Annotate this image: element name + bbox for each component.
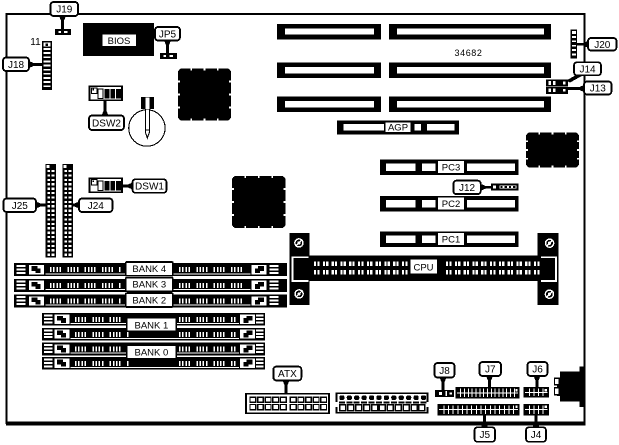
svg-text:J18: J18 <box>8 60 25 71</box>
svg-text:J8: J8 <box>439 366 450 377</box>
svg-text:J13: J13 <box>590 84 607 95</box>
svg-text:AGP: AGP <box>388 123 408 134</box>
svg-text:BANK 4: BANK 4 <box>132 264 166 275</box>
svg-text:PC1: PC1 <box>442 234 460 245</box>
svg-text:ATX: ATX <box>278 369 297 380</box>
svg-text:DSW1: DSW1 <box>135 182 164 193</box>
svg-text:PC2: PC2 <box>442 199 460 210</box>
svg-text:BANK 1: BANK 1 <box>135 320 169 331</box>
svg-text:J20: J20 <box>594 40 611 51</box>
svg-text:34682: 34682 <box>454 48 482 58</box>
svg-text:BANK 0: BANK 0 <box>135 348 169 359</box>
svg-text:J25: J25 <box>12 201 29 212</box>
svg-text:JP5: JP5 <box>159 29 177 40</box>
svg-text:J19: J19 <box>56 5 73 16</box>
svg-text:DSW2: DSW2 <box>92 118 121 129</box>
svg-text:J5: J5 <box>479 430 490 441</box>
svg-text:11: 11 <box>30 37 41 48</box>
svg-text:J4: J4 <box>531 430 542 441</box>
svg-text:J24: J24 <box>88 201 105 212</box>
svg-text:CPU: CPU <box>413 263 433 274</box>
svg-text:BANK 2: BANK 2 <box>132 295 166 306</box>
svg-text:J6: J6 <box>532 365 543 376</box>
svg-text:BANK 3: BANK 3 <box>132 280 166 291</box>
svg-text:J7: J7 <box>485 365 496 376</box>
svg-text:J14: J14 <box>579 64 596 75</box>
svg-text:J12: J12 <box>459 183 476 194</box>
svg-text:BIOS: BIOS <box>108 36 131 47</box>
svg-text:PC3: PC3 <box>442 162 460 173</box>
